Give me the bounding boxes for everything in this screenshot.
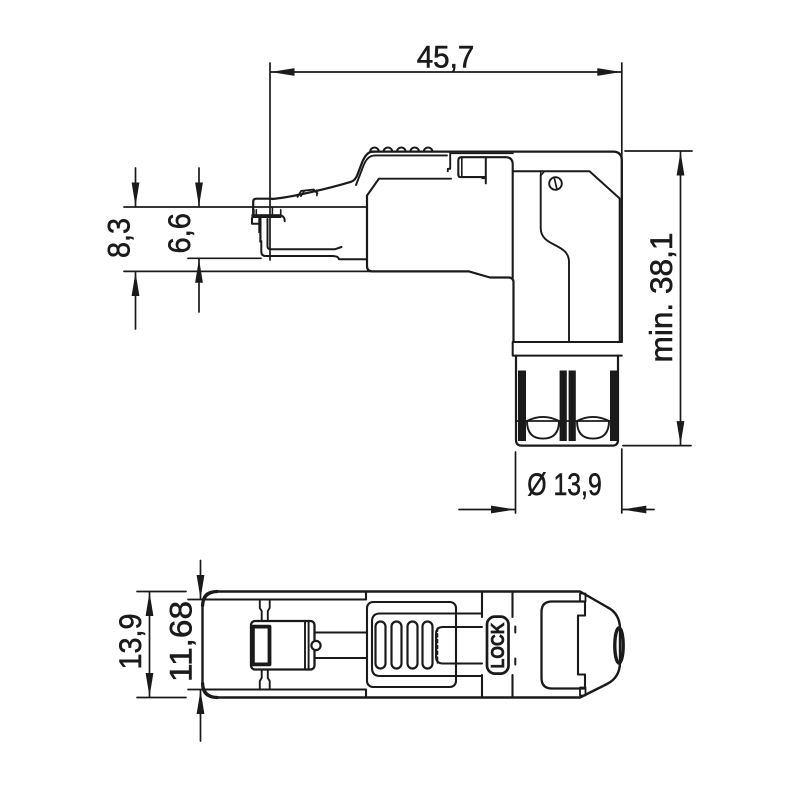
svg-text:13,9: 13,9 — [112, 614, 148, 670]
svg-text:45,7: 45,7 — [417, 39, 475, 75]
svg-text:LOCK: LOCK — [487, 622, 508, 669]
svg-text:6,6: 6,6 — [161, 213, 197, 254]
svg-text:8,3: 8,3 — [101, 218, 137, 258]
svg-text:Ø 13,9: Ø 13,9 — [527, 466, 602, 502]
svg-text:min. 38,1: min. 38,1 — [643, 233, 679, 363]
svg-text:11,68: 11,68 — [162, 601, 198, 682]
